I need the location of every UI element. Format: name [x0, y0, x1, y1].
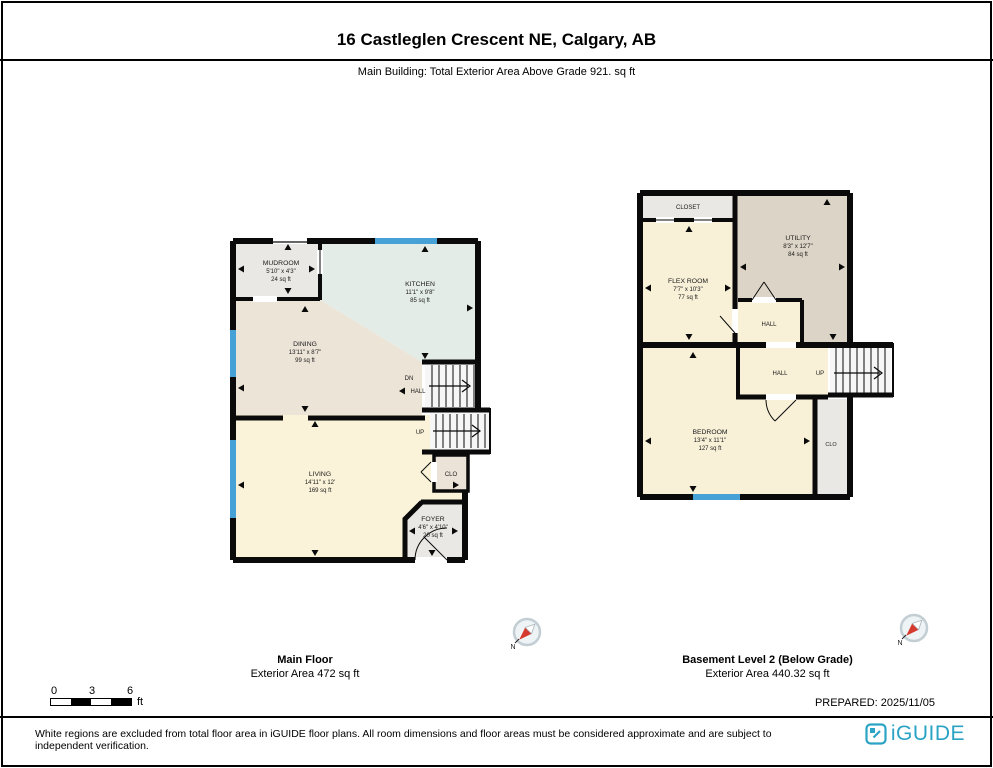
foyer-dims: 4'6" x 4'10" [418, 525, 448, 531]
main-floor-plan: MUDROOM 5'10" x 4'3" 24 sq ft KITCHEN 11… [225, 228, 500, 573]
iguide-logo: iGUIDE [864, 722, 965, 746]
side-closet-label: CLO [825, 442, 837, 448]
scale-unit: ft [137, 698, 143, 706]
living-area: 169 sq ft [308, 488, 331, 494]
dining-area: 99 sq ft [295, 358, 315, 364]
utility-label: UTILITY [785, 235, 811, 242]
lower-hall-label: HALL [772, 371, 788, 377]
footer-divider [0, 716, 993, 718]
scale-tick-3: 3 [89, 685, 95, 697]
utility-dims: 8'3" x 12'7" [783, 244, 813, 250]
main-floor-caption-title: Main Floor [205, 654, 405, 666]
compass-basement: N [896, 612, 930, 646]
bedroom-window [693, 494, 740, 500]
building-area-subtitle: Main Building: Total Exterior Area Above… [0, 66, 993, 78]
kitchen-dims: 11'1" x 9'8" [405, 290, 434, 296]
footer-disclaimer: White regions are excluded from total fl… [35, 728, 775, 752]
flex-room-dims: 7'7" x 10'3" [673, 287, 703, 293]
basement-caption: Basement Level 2 (Below Grade) Exterior … [645, 654, 890, 680]
compass-main-floor: N [509, 616, 543, 650]
mudroom-area: 24 sq ft [271, 277, 291, 283]
bedroom-dims: 13'4" x 11'1" [694, 438, 726, 444]
kitchen-label: KITCHEN [405, 281, 435, 288]
scale-tick-0: 0 [51, 685, 57, 697]
dining-label: DINING [293, 341, 317, 348]
bedroom-label: BEDROOM [692, 429, 727, 436]
main-closet-label: CLO [445, 472, 458, 478]
stairs-hall-label: HALL [410, 389, 426, 395]
mudroom-label: MUDROOM [263, 260, 300, 267]
basement-caption-title: Basement Level 2 (Below Grade) [645, 654, 890, 666]
main-floor-caption-area: Exterior Area 472 sq ft [205, 668, 405, 680]
iguide-brand-text: iGUIDE [891, 722, 965, 746]
living-label: LIVING [309, 471, 331, 478]
mudroom-dims: 5'10" x 4'3" [266, 269, 296, 275]
main-floor-room-fills [236, 241, 490, 560]
dining-dims: 13'11" x 8'7" [289, 350, 321, 356]
bedroom-area: 127 sq ft [698, 446, 721, 452]
inner-hall-label: HALL [761, 322, 777, 328]
main-floor-caption: Main Floor Exterior Area 472 sq ft [205, 654, 405, 680]
north-label: N [510, 644, 515, 650]
flex-room-label: FLEX ROOM [668, 278, 708, 285]
stairs-dn-label: DN [405, 376, 414, 382]
utility-area: 84 sq ft [788, 252, 808, 258]
scale-bar: 0 3 6 ft [50, 685, 170, 706]
scale-ticks: 0 3 6 [50, 685, 170, 698]
scale-tick-6: 6 [127, 685, 133, 697]
scale-bar-segments [50, 698, 132, 706]
header-divider [0, 59, 993, 61]
foyer-label: FOYER [421, 516, 445, 523]
kitchen-area: 85 sq ft [410, 298, 430, 304]
north-label: N [897, 640, 902, 646]
prepared-date: PREPARED: 2025/11/05 [815, 697, 935, 709]
flex-room-area: 77 sq ft [678, 295, 698, 301]
basement-closet-label: CLOSET [676, 205, 700, 211]
basement-floor-plan: CLOSET FLEX ROOM 7'7" x 10'3" 77 sq ft U… [628, 183, 903, 508]
stairs-up-label: UP [416, 430, 424, 436]
iguide-logo-icon [864, 722, 888, 746]
living-dims: 14'11" x 12' [305, 480, 335, 486]
foyer-area: 20 sq ft [423, 533, 443, 539]
basement-caption-area: Exterior Area 440.32 sq ft [645, 668, 890, 680]
basement-up-label: UP [816, 371, 824, 377]
page-title: 16 Castleglen Crescent NE, Calgary, AB [0, 30, 993, 50]
